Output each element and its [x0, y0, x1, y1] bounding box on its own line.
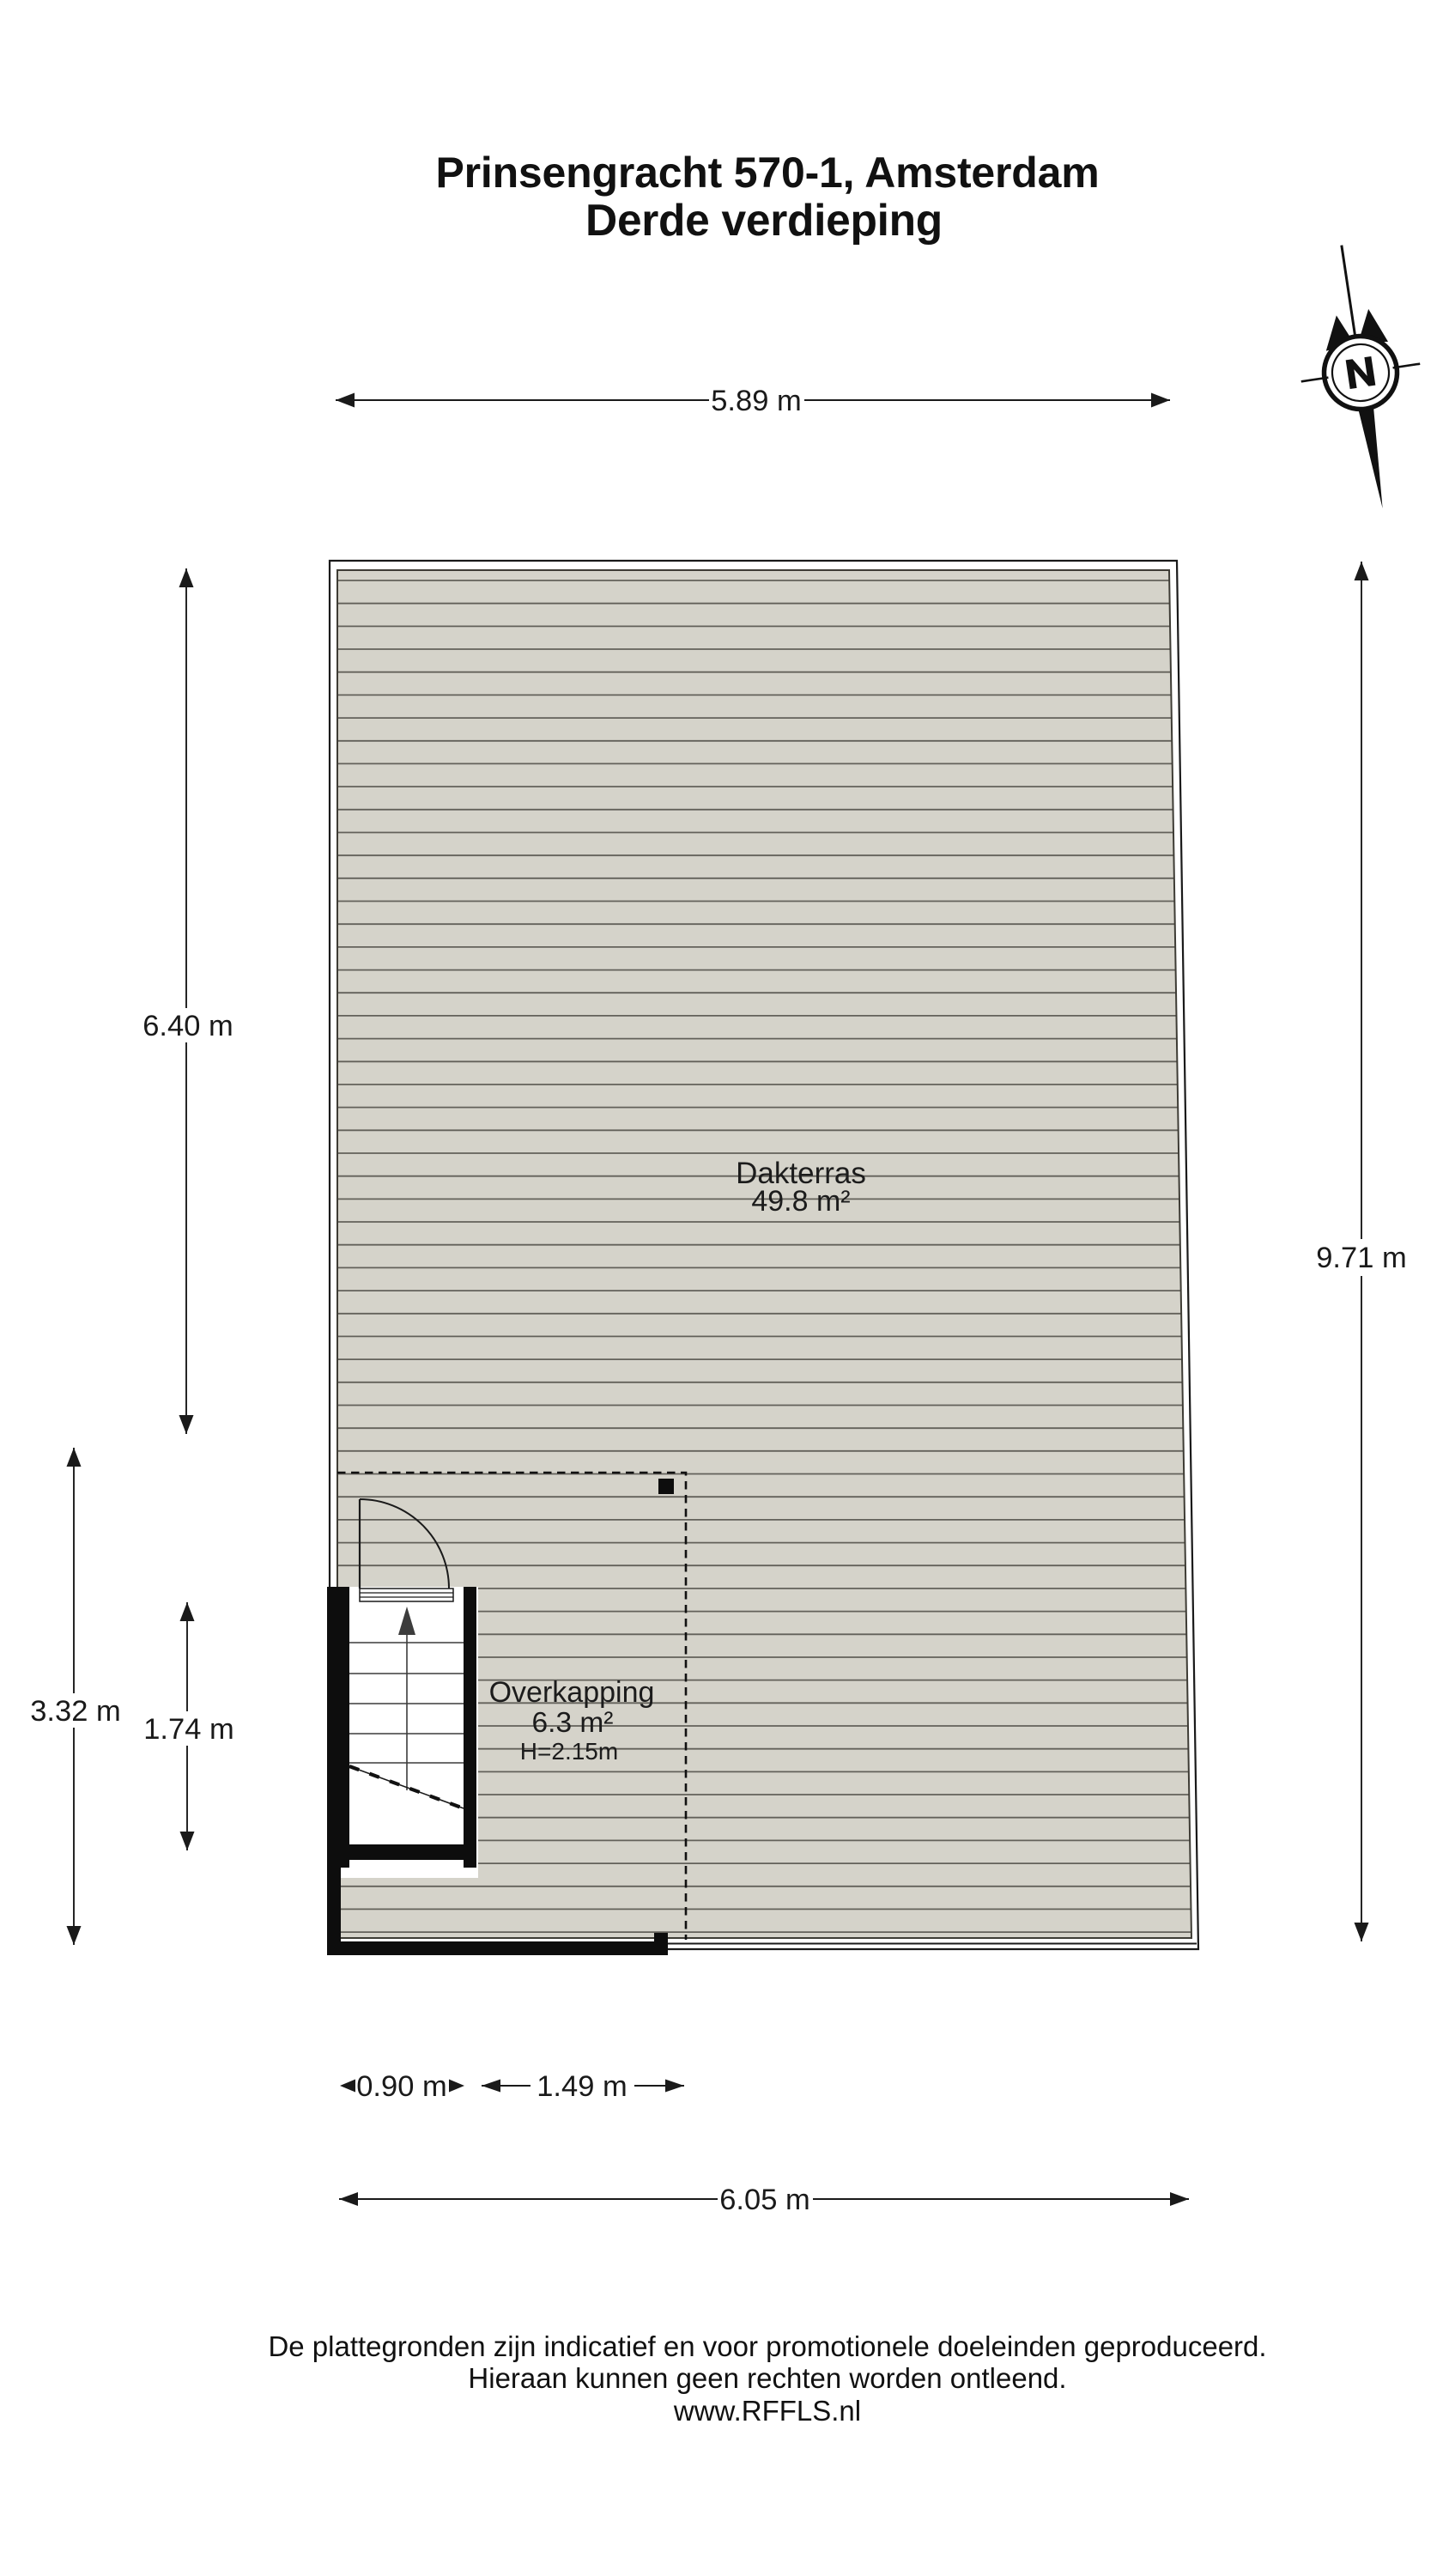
- svg-text:Overkapping: Overkapping: [489, 1676, 655, 1709]
- svg-text:1.49 m: 1.49 m: [537, 2070, 627, 2103]
- svg-text:3.32 m: 3.32 m: [30, 1695, 120, 1728]
- svg-text:Derde verdieping: Derde verdieping: [585, 195, 943, 245]
- svg-text:1.74 m: 1.74 m: [143, 1713, 233, 1746]
- svg-text:www.RFFLS.nl: www.RFFLS.nl: [673, 2395, 861, 2427]
- svg-text:5.89 m: 5.89 m: [711, 385, 801, 417]
- svg-text:9.71 m: 9.71 m: [1316, 1242, 1406, 1274]
- svg-text:6.3 m²: 6.3 m²: [532, 1707, 614, 1739]
- svg-text:Prinsengracht 570-1, Amsterdam: Prinsengracht 570-1, Amsterdam: [435, 149, 1099, 197]
- svg-text:Hieraan kunnen geen rechten wo: Hieraan kunnen geen rechten worden ontle…: [468, 2362, 1066, 2394]
- svg-text:0.90 m: 0.90 m: [356, 2070, 446, 2103]
- svg-text:De plattegronden zijn indicati: De plattegronden zijn indicatief en voor…: [268, 2330, 1266, 2362]
- svg-text:6.40 m: 6.40 m: [142, 1010, 233, 1042]
- svg-text:H=2.15m: H=2.15m: [520, 1738, 618, 1765]
- svg-text:6.05 m: 6.05 m: [719, 2184, 809, 2216]
- svg-text:49.8 m²: 49.8 m²: [751, 1185, 850, 1218]
